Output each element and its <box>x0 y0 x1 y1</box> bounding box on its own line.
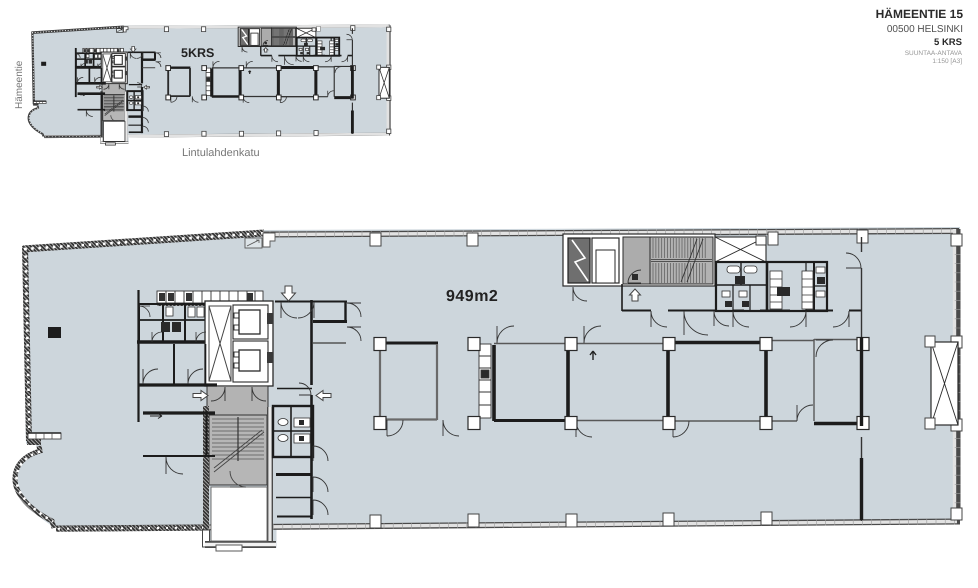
svg-text:Hämeentie: Hämeentie <box>14 60 25 109</box>
svg-text:SUUNTAA-ANTAVA: SUUNTAA-ANTAVA <box>905 50 963 57</box>
svg-text:Lintulahdenkatu: Lintulahdenkatu <box>182 147 260 159</box>
svg-text:949m2: 949m2 <box>446 288 498 305</box>
svg-text:5KRS: 5KRS <box>181 46 214 60</box>
svg-text:5 KRS: 5 KRS <box>934 37 962 48</box>
svg-text:00500 HELSINKI: 00500 HELSINKI <box>887 24 963 35</box>
svg-text:1:150 [A3]: 1:150 [A3] <box>932 58 962 65</box>
svg-text:HÄMEENTIE 15: HÄMEENTIE 15 <box>876 7 964 21</box>
